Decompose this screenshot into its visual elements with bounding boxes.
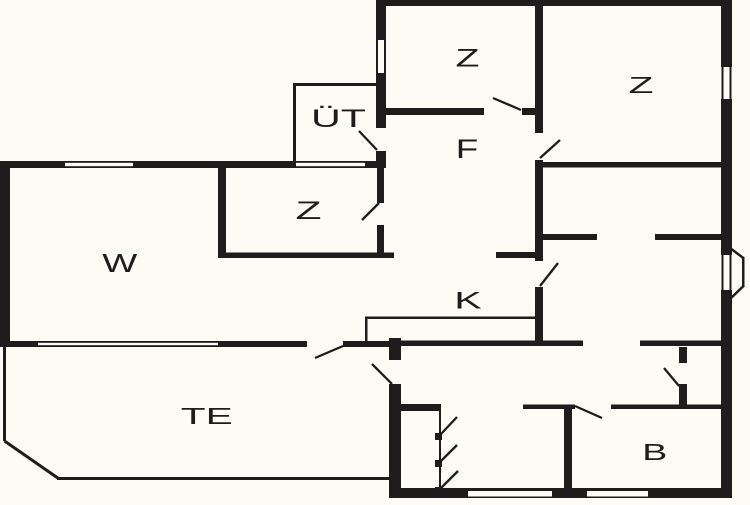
svg-text:K: K bbox=[454, 288, 483, 315]
svg-text:Z: Z bbox=[296, 197, 322, 225]
svg-text:Z: Z bbox=[629, 72, 654, 98]
svg-text:TE: TE bbox=[181, 403, 233, 429]
svg-text:ÜT: ÜT bbox=[311, 105, 366, 133]
svg-text:F: F bbox=[456, 134, 479, 164]
svg-text:Z: Z bbox=[456, 45, 480, 73]
svg-text:W: W bbox=[102, 248, 138, 278]
svg-text:B: B bbox=[642, 439, 667, 465]
